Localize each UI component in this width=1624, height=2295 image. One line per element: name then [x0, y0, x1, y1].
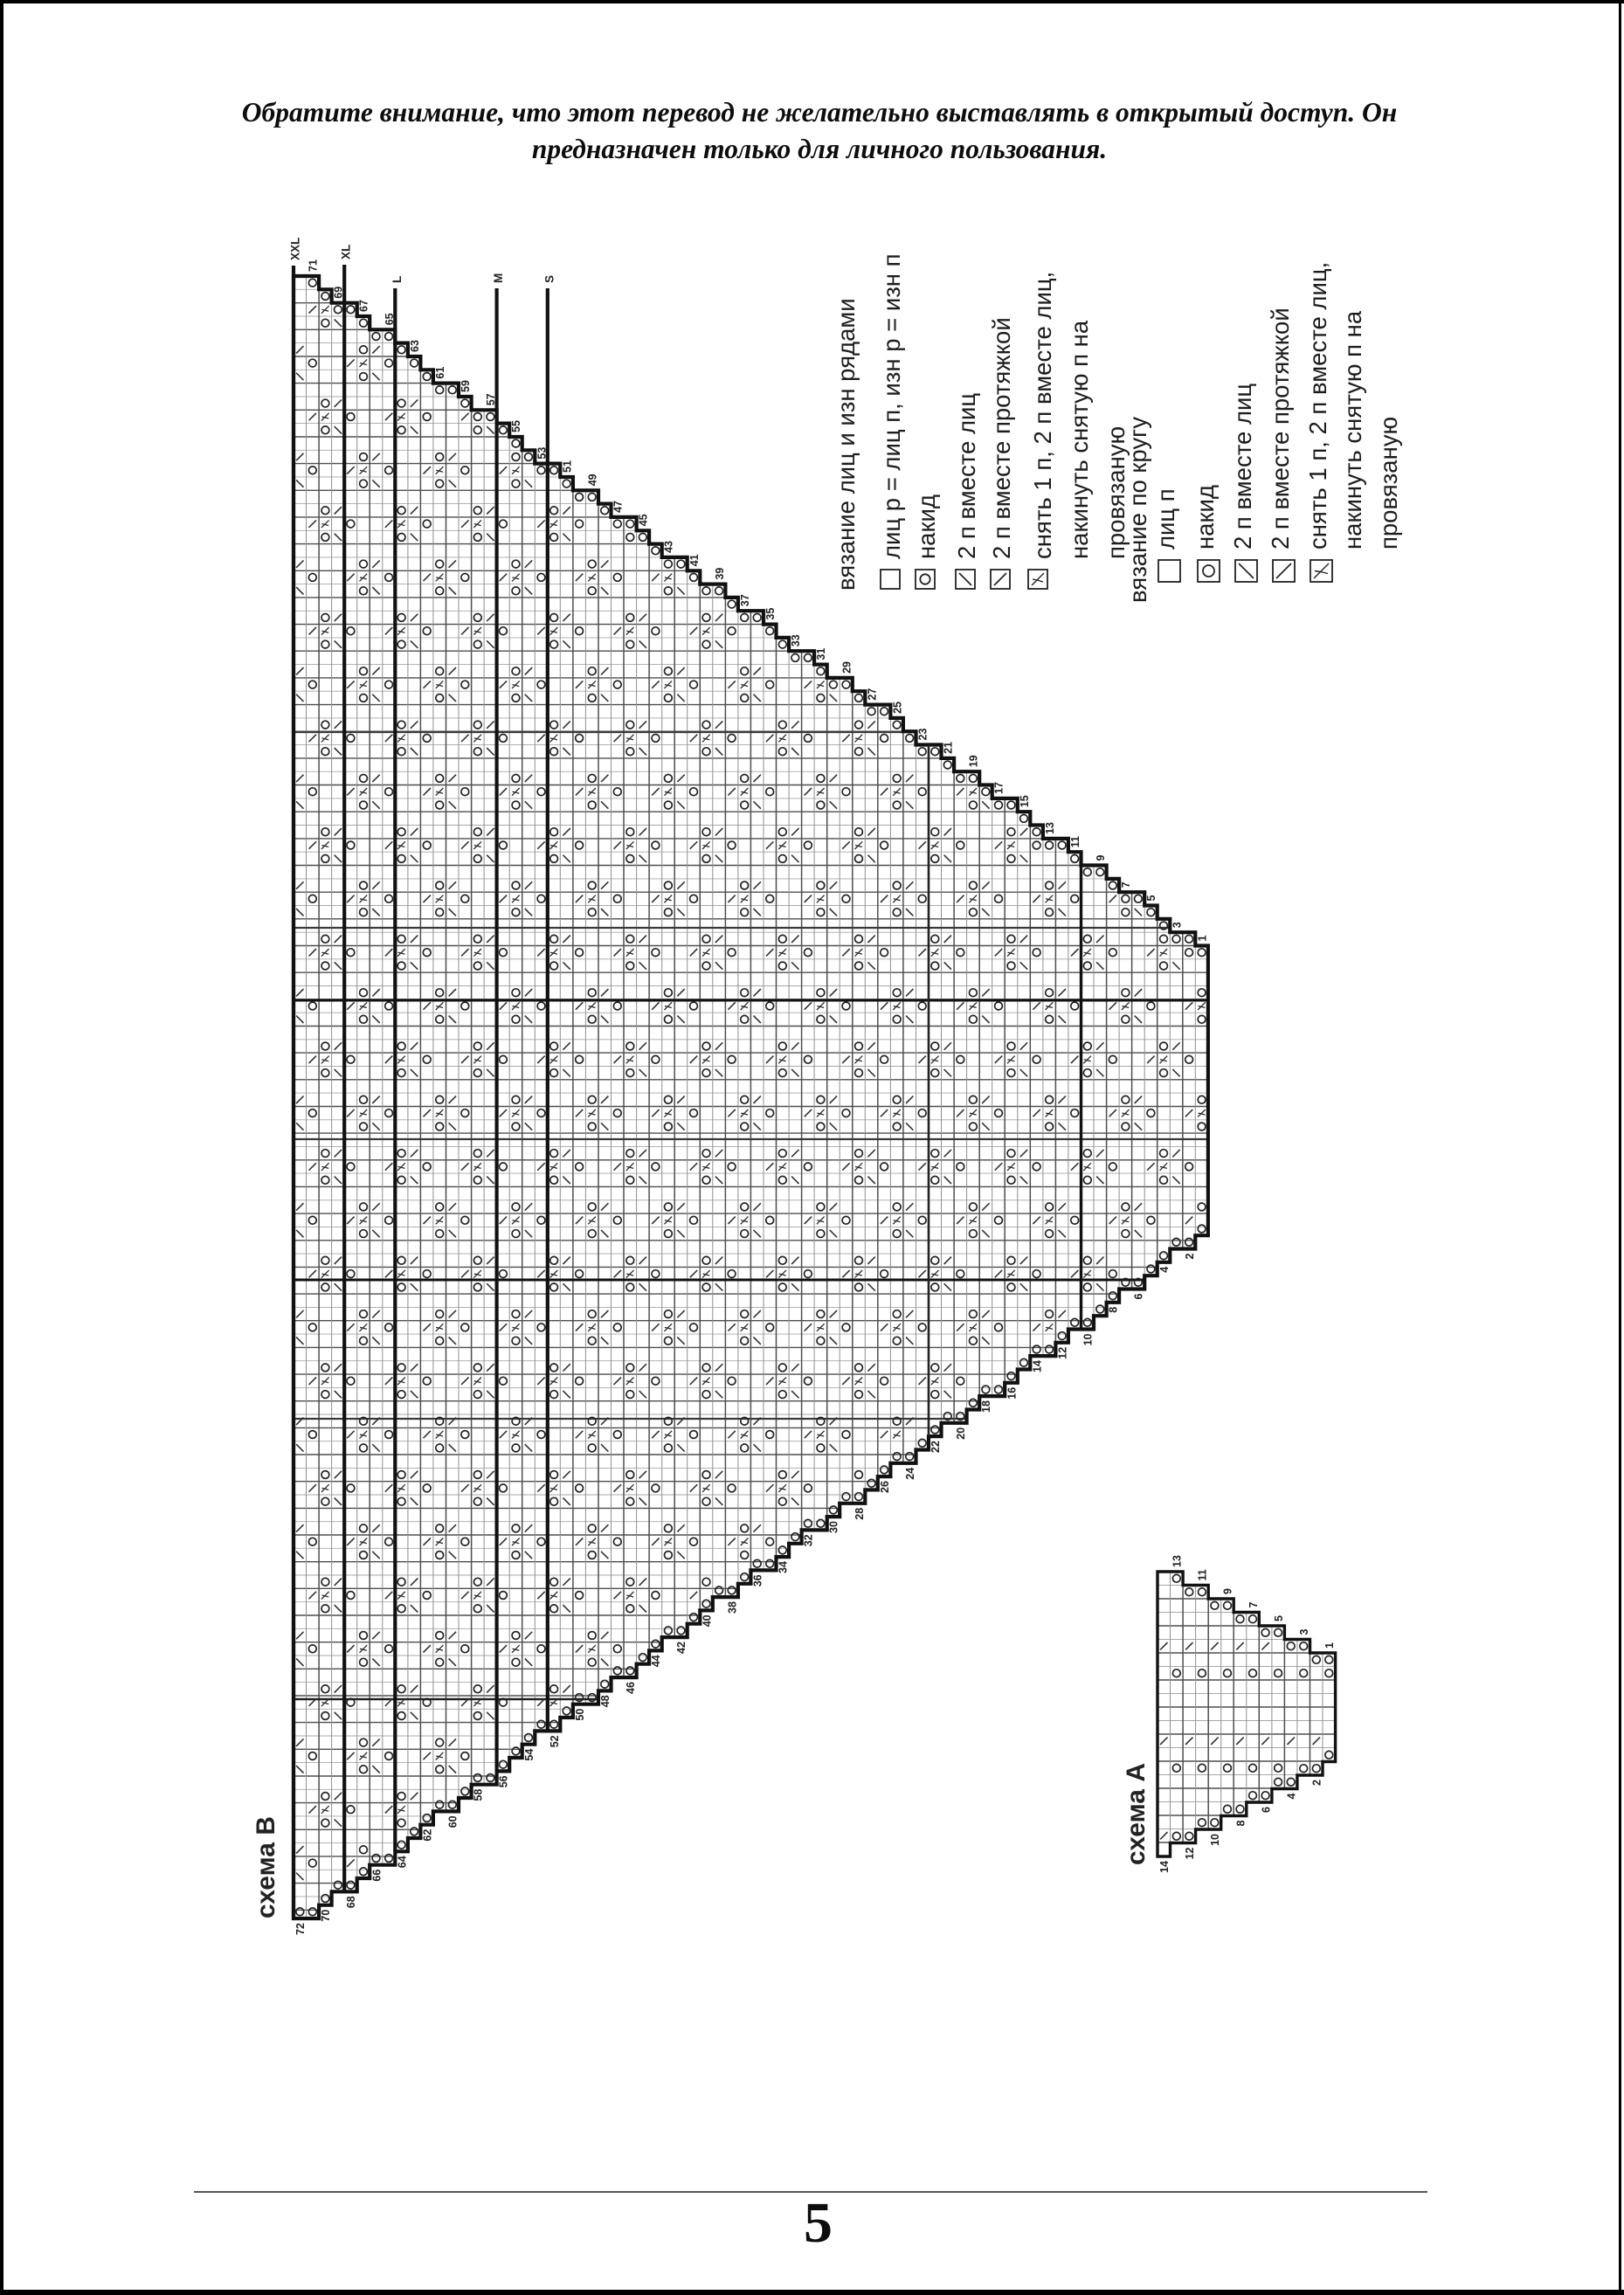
svg-text:17: 17 — [993, 782, 1005, 794]
svg-text:2 п вместе лиц: 2 п вместе лиц — [953, 393, 980, 559]
svg-text:58: 58 — [473, 1789, 485, 1801]
svg-text:21: 21 — [943, 742, 955, 754]
svg-text:M: M — [492, 273, 505, 283]
svg-text:S: S — [542, 275, 556, 283]
svg-text:вязание лиц и изн рядами: вязание лиц и изн рядами — [833, 298, 860, 591]
svg-text:31: 31 — [815, 648, 827, 660]
svg-text:26: 26 — [879, 1481, 891, 1493]
svg-text:накид: накид — [1192, 485, 1219, 550]
svg-text:30: 30 — [828, 1521, 840, 1533]
svg-text:6: 6 — [1260, 1807, 1272, 1813]
svg-text:23: 23 — [917, 729, 929, 741]
svg-text:46: 46 — [625, 1682, 637, 1694]
svg-text:20: 20 — [955, 1427, 967, 1440]
svg-text:схема B: схема B — [252, 1816, 280, 1918]
svg-text:15: 15 — [1019, 795, 1031, 807]
svg-text:64: 64 — [396, 1856, 408, 1868]
svg-text:36: 36 — [752, 1574, 764, 1586]
svg-text:накинуть снятую п на: накинуть снятую п на — [1339, 310, 1366, 550]
svg-text:10: 10 — [1209, 1834, 1221, 1846]
svg-text:вязание по кругу: вязание по кругу — [1124, 417, 1151, 603]
svg-text:54: 54 — [523, 1749, 536, 1761]
svg-text:48: 48 — [599, 1695, 612, 1707]
svg-text:схема A: схема A — [1122, 1763, 1151, 1865]
svg-text:41: 41 — [688, 554, 701, 566]
svg-text:8: 8 — [1108, 1307, 1120, 1313]
svg-text:22: 22 — [929, 1441, 942, 1453]
svg-text:18: 18 — [980, 1400, 992, 1413]
svg-text:39: 39 — [714, 568, 726, 580]
svg-text:2: 2 — [1184, 1253, 1196, 1259]
svg-text:1: 1 — [1196, 936, 1208, 942]
svg-text:12: 12 — [1056, 1347, 1068, 1359]
svg-text:5: 5 — [1145, 895, 1158, 902]
svg-text:16: 16 — [1005, 1387, 1018, 1400]
svg-text:27: 27 — [866, 688, 878, 701]
svg-text:снять 1 п, 2 п вместе лиц,: снять 1 п, 2 п вместе лиц, — [1304, 262, 1331, 550]
svg-text:1: 1 — [1323, 1642, 1336, 1649]
svg-text:2 п вместе лиц: 2 п вместе лиц — [1229, 384, 1256, 550]
svg-text:63: 63 — [409, 340, 421, 352]
svg-text:4: 4 — [1285, 1793, 1297, 1799]
svg-text:40: 40 — [701, 1614, 713, 1627]
svg-text:2 п вместе протяжкой: 2 п вместе протяжкой — [1267, 308, 1294, 550]
svg-text:33: 33 — [790, 634, 802, 646]
svg-text:лиц р = лиц п, изн р = изн п: лиц р = лиц п, изн р = изн п — [878, 253, 905, 559]
svg-text:44: 44 — [650, 1655, 662, 1667]
svg-text:13: 13 — [1171, 1555, 1184, 1567]
svg-text:8: 8 — [1234, 1820, 1247, 1826]
svg-text:9: 9 — [1095, 855, 1107, 861]
svg-text:2 п вместе протяжкой: 2 п вместе протяжкой — [988, 317, 1015, 559]
svg-text:2: 2 — [1311, 1780, 1323, 1786]
svg-text:61: 61 — [434, 367, 446, 379]
svg-text:37: 37 — [739, 594, 751, 606]
svg-text:42: 42 — [675, 1642, 688, 1654]
svg-text:провязаную: провязаную — [1375, 417, 1402, 550]
svg-text:49: 49 — [587, 474, 599, 486]
svg-text:XXL: XXL — [289, 238, 302, 260]
svg-text:35: 35 — [764, 608, 777, 620]
svg-text:3: 3 — [1171, 922, 1183, 928]
svg-text:53: 53 — [536, 447, 548, 460]
svg-text:45: 45 — [638, 514, 650, 526]
svg-text:71: 71 — [308, 259, 320, 272]
svg-text:69: 69 — [333, 287, 345, 299]
svg-text:52: 52 — [549, 1735, 561, 1747]
svg-text:72: 72 — [294, 1923, 307, 1935]
svg-text:34: 34 — [777, 1561, 790, 1573]
svg-text:L: L — [390, 276, 404, 283]
svg-text:лиц п: лиц п — [1152, 488, 1179, 550]
svg-text:накинуть снятую п на: накинуть снятую п на — [1066, 320, 1093, 559]
svg-text:51: 51 — [561, 460, 573, 473]
svg-text:55: 55 — [510, 420, 522, 432]
svg-text:XL: XL — [340, 245, 353, 259]
svg-text:11: 11 — [1069, 836, 1082, 847]
svg-text:25: 25 — [891, 702, 903, 714]
svg-text:4: 4 — [1158, 1267, 1171, 1273]
svg-text:9: 9 — [1222, 1588, 1234, 1594]
svg-text:32: 32 — [803, 1534, 815, 1546]
svg-text:28: 28 — [853, 1508, 866, 1520]
svg-text:7: 7 — [1247, 1602, 1260, 1608]
svg-text:68: 68 — [345, 1896, 357, 1908]
svg-text:6: 6 — [1133, 1293, 1145, 1299]
svg-text:62: 62 — [421, 1829, 433, 1842]
svg-text:11: 11 — [1197, 1569, 1209, 1580]
svg-text:накид: накид — [913, 494, 940, 559]
svg-text:14: 14 — [1031, 1360, 1043, 1372]
svg-text:24: 24 — [904, 1468, 916, 1480]
svg-text:14: 14 — [1158, 1861, 1171, 1873]
svg-text:59: 59 — [460, 380, 472, 392]
svg-text:3: 3 — [1298, 1629, 1310, 1635]
svg-text:47: 47 — [612, 501, 625, 513]
svg-text:65: 65 — [384, 313, 396, 325]
svg-text:12: 12 — [1184, 1847, 1196, 1859]
svg-text:43: 43 — [663, 541, 675, 553]
svg-text:снять 1 п, 2 п вместе лиц,: снять 1 п, 2 п вместе лиц, — [1029, 272, 1056, 559]
svg-text:66: 66 — [370, 1870, 383, 1882]
svg-text:67: 67 — [358, 300, 370, 312]
svg-text:5: 5 — [1273, 1615, 1285, 1621]
svg-text:7: 7 — [1120, 881, 1132, 888]
svg-text:13: 13 — [1044, 822, 1056, 834]
svg-text:19: 19 — [968, 755, 980, 767]
svg-text:10: 10 — [1082, 1333, 1095, 1345]
svg-text:57: 57 — [485, 393, 497, 405]
svg-text:60: 60 — [447, 1815, 460, 1828]
svg-text:70: 70 — [320, 1910, 332, 1922]
svg-text:29: 29 — [840, 661, 853, 674]
svg-text:56: 56 — [498, 1775, 510, 1787]
svg-text:50: 50 — [574, 1709, 586, 1721]
svg-text:38: 38 — [726, 1601, 738, 1614]
